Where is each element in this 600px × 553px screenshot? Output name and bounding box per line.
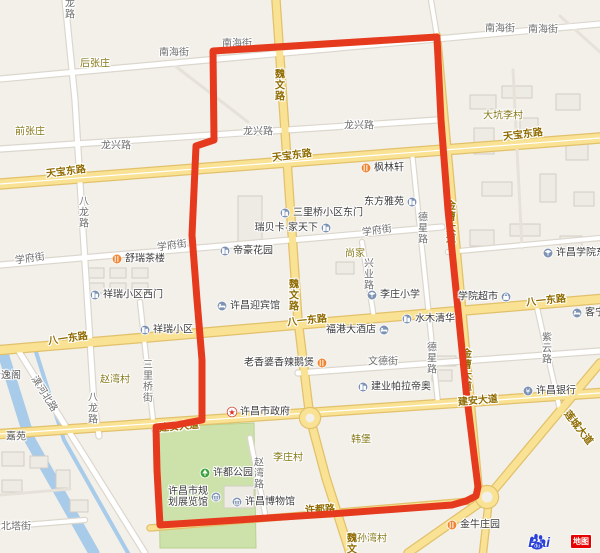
road-八龙路	[65, 0, 99, 436]
poi-label[interactable]: 福港大酒店	[326, 325, 376, 336]
road-casing-天宝东路	[0, 138, 600, 184]
svg-text:¥: ¥	[526, 387, 531, 396]
poi-label[interactable]: 金牛庄园	[460, 520, 500, 531]
poi-label[interactable]: 帝豪花园	[233, 246, 273, 257]
school-icon[interactable]	[367, 290, 378, 301]
building-footprint	[502, 86, 532, 98]
road-三里桥街	[140, 302, 154, 429]
building-footprint	[110, 268, 126, 278]
river	[2, 350, 94, 553]
road-casing-德星路	[412, 152, 438, 403]
building-footprint	[132, 268, 148, 278]
poi-label[interactable]: 许昌迎宾馆	[230, 301, 280, 312]
food-icon[interactable]	[361, 163, 372, 174]
road-label: 天宝东路	[502, 127, 543, 143]
park-area	[158, 423, 256, 548]
map-base-layer	[0, 0, 600, 553]
food-icon[interactable]	[447, 520, 458, 531]
building-footprint	[430, 356, 456, 366]
road-label: 潩河北路	[29, 374, 60, 414]
poi-label[interactable]: 瑞贝卡·家天下	[255, 223, 318, 234]
road-学府街	[0, 227, 442, 265]
building-footprint	[110, 283, 126, 293]
food-icon[interactable]	[317, 358, 328, 369]
building-icon[interactable]	[90, 290, 101, 301]
building-footprint	[482, 182, 512, 196]
road-label: 南海街	[485, 24, 515, 35]
road-casing-龙兴路	[0, 120, 437, 149]
road-label: 龙兴路	[344, 121, 374, 132]
road-校园南路	[448, 238, 600, 252]
bank-icon[interactable]: ¥	[523, 386, 534, 397]
poi-label[interactable]: 学院超市	[458, 292, 498, 303]
road-casing-北塔街	[0, 520, 85, 527]
village-label: 大坑李村	[483, 111, 523, 122]
road-莲城大道	[408, 363, 600, 553]
road-label: 八一东路	[47, 331, 88, 347]
poi-label[interactable]: 许昌市政府	[240, 407, 290, 418]
poi-label[interactable]: 许昌市规划展览馆	[168, 486, 208, 508]
road-label: 八龙路	[77, 196, 88, 229]
village-label: 赵湾村	[100, 375, 130, 386]
roundabout-center	[482, 492, 493, 503]
poi-label[interactable]: 枫林轩	[374, 163, 404, 174]
road-兴业路	[362, 242, 374, 318]
road-小路4	[431, 0, 437, 36]
place-label: 嘉苑	[6, 432, 26, 443]
road-label: 魏文路	[345, 533, 356, 553]
road-label: 许都路	[305, 504, 336, 517]
road-label: 兴业路	[362, 258, 373, 291]
road-文德街	[298, 351, 600, 373]
road-label: 文德街	[368, 357, 398, 368]
road-label: 建安大道	[458, 394, 499, 408]
hotel-icon[interactable]	[379, 325, 390, 336]
poi-label[interactable]: 东方雅苑	[364, 197, 404, 208]
road-赵湾路	[250, 438, 265, 513]
building-icon[interactable]	[321, 223, 332, 234]
road-许都路	[150, 501, 470, 528]
building-footprint	[556, 94, 580, 110]
village-label: 尚家	[345, 249, 365, 260]
road-casing-金曹大道	[437, 36, 479, 492]
road-label: 龙兴路	[243, 127, 273, 138]
poi-label[interactable]: 许都公园	[213, 468, 253, 479]
road-label: 魏文路	[287, 279, 298, 312]
road-casing-建安大道	[0, 393, 600, 434]
road-casing-兴业路	[362, 242, 374, 318]
baidu-logo: Bai du 地图	[528, 533, 592, 550]
road-casing-学府街	[0, 227, 442, 265]
road-label: 天宝东路	[45, 164, 86, 180]
building-icon[interactable]	[407, 197, 418, 208]
road-casing-莲城大道	[408, 363, 600, 553]
poi-label[interactable]: 水木清华	[415, 314, 455, 325]
road-label: 学府街	[361, 223, 392, 238]
road-紫云路	[536, 303, 560, 410]
village-label: 李庄村	[273, 453, 303, 464]
road-casing-校园南路	[448, 238, 600, 252]
building-footprint	[510, 224, 540, 236]
park-icon[interactable]	[200, 468, 211, 479]
road-校园路	[513, 70, 522, 248]
poi-label[interactable]: 祥瑞小区西门	[103, 290, 163, 301]
museum-icon[interactable]	[232, 497, 243, 508]
poi-label[interactable]: 许昌银行	[536, 386, 576, 397]
village-label: 孙湾村	[357, 534, 387, 545]
road-label: 金曹大道	[460, 348, 471, 392]
building-footprint	[70, 500, 88, 512]
food-icon[interactable]	[112, 254, 123, 265]
road-casing-小路4	[431, 0, 437, 36]
road-casing-八龙路	[65, 0, 99, 436]
building-footprint	[560, 236, 582, 250]
building-footprint	[474, 128, 494, 154]
road-金曹大道	[437, 36, 479, 492]
road-casing-紫云路	[536, 303, 560, 410]
route-overlay-layer	[0, 0, 600, 553]
building-footprint	[88, 283, 104, 293]
baidu-paw-icon: du	[551, 533, 569, 550]
hotel-icon[interactable]	[217, 301, 228, 312]
road-label: 赵湾路	[252, 457, 263, 490]
building-footprint	[520, 118, 538, 148]
roundabout	[300, 408, 320, 428]
building-footprint	[132, 283, 148, 293]
road-label: 魏文路	[273, 69, 284, 102]
map-canvas[interactable]: 南海街建安大道金曹大道金曹大道许都路 南海街南海街南海街龙兴路龙兴路龙兴路学府街…	[0, 0, 600, 553]
place-label: 清逸阁	[0, 371, 21, 382]
road-建安大道	[0, 393, 600, 434]
building-footprint	[238, 196, 262, 242]
road-label: 八龙路	[63, 0, 74, 20]
road-小路2	[560, 16, 600, 52]
road-label: 天宝东路	[271, 148, 312, 164]
building-icon[interactable]	[358, 382, 369, 393]
road-小路1	[170, 62, 248, 122]
road-德星路	[412, 152, 438, 403]
building-footprint	[2, 480, 22, 492]
village-label: 前张庄	[15, 127, 45, 138]
building-icon[interactable]	[280, 208, 291, 219]
road-潩河北路	[18, 350, 145, 553]
poi-label[interactable]: 李庄小学	[380, 290, 420, 301]
building-footprint	[336, 262, 354, 274]
road-南海街	[0, 24, 600, 79]
building-footprint	[540, 174, 556, 202]
road-龙兴路	[0, 120, 437, 149]
road-label: 德星路	[416, 212, 427, 245]
hotel-icon[interactable]	[572, 308, 583, 319]
road-天宝东路	[0, 138, 600, 184]
svg-text:★: ★	[228, 407, 235, 417]
building-footprint	[470, 95, 496, 109]
poi-label[interactable]: 客宁	[585, 308, 600, 319]
building-icon[interactable]	[402, 314, 413, 325]
road-label: 南海街	[159, 48, 189, 59]
poi-label[interactable]: 舒瑞茶楼	[125, 254, 165, 265]
road-label: 莲城大道	[561, 409, 594, 447]
road-casing-莲城大道南支	[483, 508, 488, 553]
road-casing-文德街	[298, 351, 600, 373]
building-icon[interactable]	[140, 325, 151, 336]
road-label: 八一东路	[287, 313, 328, 328]
road-casing-潩河北路	[18, 350, 145, 553]
building-footprint	[56, 470, 70, 488]
school-icon[interactable]	[543, 248, 554, 259]
road-casing-三里桥街	[140, 302, 154, 429]
building-icon[interactable]	[220, 246, 231, 257]
village-label: 后张庄	[80, 59, 110, 70]
road-label: 八龙路	[86, 392, 97, 425]
shop-icon[interactable]	[501, 292, 512, 303]
village-label: 韩堡	[351, 435, 371, 446]
baidu-logo-text: Bai	[528, 534, 550, 550]
labels-under-route: 南海街建安大道金曹大道金曹大道许都路	[0, 0, 600, 553]
gov-icon[interactable]: ★	[227, 407, 238, 418]
roundabout	[476, 486, 498, 508]
route-outline	[156, 37, 478, 525]
building-footprint	[224, 486, 254, 508]
poi-label[interactable]: 许昌学院东校区	[556, 248, 600, 259]
road-label: 紫云路	[540, 332, 551, 365]
poi-label[interactable]: 三里桥小区东门	[293, 208, 363, 219]
building-footprint	[30, 456, 48, 468]
road-label: 南海街	[222, 39, 252, 50]
road-label: 南海街	[528, 25, 558, 36]
poi-label[interactable]: 祥瑞小区	[153, 325, 193, 336]
road-label: 北塔街	[1, 522, 31, 533]
road-label: 金曹大道	[444, 200, 455, 244]
building-footprint	[432, 370, 452, 381]
museum-icon[interactable]	[211, 492, 222, 503]
road-centerline-建安大道	[0, 393, 600, 434]
road-label: 三里桥街	[141, 359, 152, 403]
poi-label[interactable]: 老香婆香辣鹅煲	[244, 358, 314, 369]
road-centerline-天宝东路	[0, 138, 600, 184]
building-footprint	[566, 138, 588, 160]
labels-layer: 南海街南海街南海街龙兴路龙兴路龙兴路学府街学府街学府街文德街北塔街潩河北路八龙路…	[0, 0, 600, 553]
river	[36, 352, 128, 553]
baidu-map-badge: 地图	[570, 534, 592, 549]
building-footprint	[574, 192, 594, 206]
road-label: 学府街	[156, 238, 187, 253]
road-casing-赵湾路	[250, 438, 265, 513]
road-北塔街	[0, 520, 85, 527]
roundabout-casing	[299, 407, 321, 429]
road-莲城大道南支	[483, 508, 488, 553]
building-footprint	[470, 230, 494, 246]
poi-label[interactable]: 许昌博物馆	[245, 497, 295, 508]
road-casing-许都路	[150, 501, 470, 528]
road-label: 八一东路	[526, 293, 567, 308]
building-footprint	[2, 452, 24, 466]
roundabout-casing	[475, 485, 499, 509]
road-casing-魏文路	[276, 0, 350, 553]
road-八一东路	[0, 299, 600, 350]
road-魏文路	[276, 0, 350, 553]
road-label: 建安大道	[159, 420, 200, 434]
poi-label[interactable]: 建业帕拉帝奥	[371, 382, 431, 393]
road-小路3	[0, 489, 70, 495]
road-label: 德星路	[425, 342, 436, 375]
road-casing-南海街	[0, 24, 600, 79]
roundabout-center	[306, 414, 315, 423]
road-label: 学府街	[14, 251, 45, 266]
building-footprint	[88, 268, 104, 278]
road-label: 龙兴路	[101, 141, 131, 152]
road-casing-八一东路	[0, 299, 600, 350]
